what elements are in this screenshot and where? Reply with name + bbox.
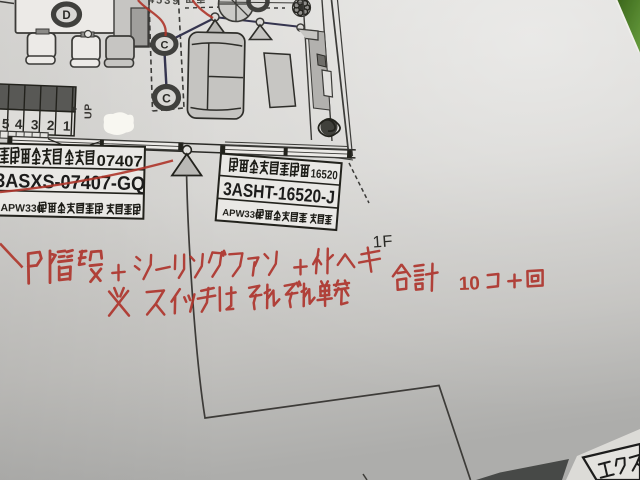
svg-text:4: 4 <box>15 117 24 132</box>
svg-text:07407: 07407 <box>96 153 142 171</box>
svg-text:UP: UP <box>83 103 95 119</box>
svg-text:5: 5 <box>2 116 11 131</box>
svg-text:D: D <box>62 10 70 22</box>
svg-text:16520: 16520 <box>310 166 338 182</box>
svg-text:C: C <box>161 40 169 52</box>
svg-text:3: 3 <box>31 117 40 132</box>
svg-text:C: C <box>162 92 171 106</box>
svg-text:1F: 1F <box>372 232 393 251</box>
svg-text:1: 1 <box>63 118 72 133</box>
svg-text:APW330: APW330 <box>0 202 42 215</box>
svg-text:2: 2 <box>47 118 55 133</box>
svg-text:10: 10 <box>458 273 480 295</box>
